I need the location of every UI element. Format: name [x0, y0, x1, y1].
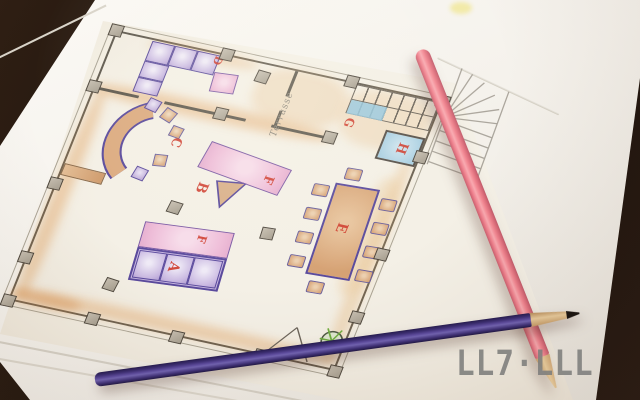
yellow-smudge — [450, 2, 472, 14]
curved-sofa — [102, 105, 153, 175]
photo-of-floorplan-sketch: G H Terrasse D — [0, 0, 640, 400]
watermark-text: LL7·LLL — [456, 344, 594, 384]
lounge-set: F A — [125, 221, 237, 294]
purple-pencil-lead-tip — [566, 309, 580, 319]
